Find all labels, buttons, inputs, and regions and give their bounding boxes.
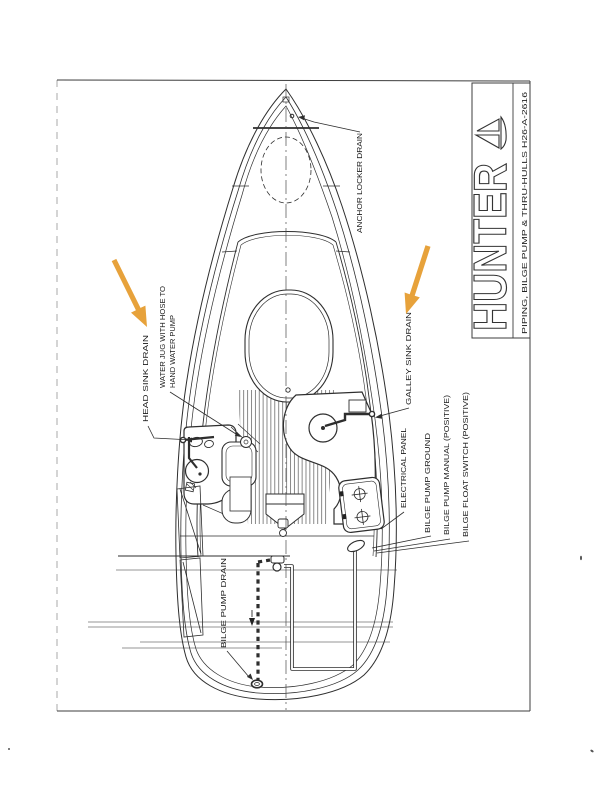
speck-bottom-right — [590, 749, 594, 753]
label-water-jug-line2: HAND WATER PUMP — [168, 315, 177, 388]
mast-post-mark — [286, 388, 290, 392]
pop-top-outer — [245, 290, 333, 402]
leader-arrowhead-bilge-drain — [247, 674, 253, 681]
label-galley-sink-drain: GALLEY SINK DRAIN — [404, 312, 413, 405]
leader-bilge-pump-ground — [372, 536, 431, 548]
label-electrical-panel: ELECTRICAL PANEL — [399, 428, 408, 508]
highlight-arrow-head-sink-drain — [112, 259, 147, 327]
electrical-panel — [338, 477, 385, 534]
galley-sink-drain-dot — [321, 426, 325, 430]
cockpit-fitting-box — [278, 519, 288, 528]
toilet — [186, 460, 209, 483]
leader-bilge-pump-drain — [227, 651, 249, 677]
leader-arrowhead-galley-sink — [375, 414, 382, 419]
speck-bottom-left — [8, 748, 10, 750]
bilge-system — [249, 538, 366, 688]
cabin-front — [238, 232, 336, 243]
deck-lines — [222, 251, 350, 252]
galley-sink-thru-hull — [369, 411, 374, 416]
panel-clip-bottom — [342, 514, 346, 519]
label-bilge-float-switch: BILGE FLOAT SWITCH (POSITIVE) — [461, 392, 470, 537]
water-jug — [241, 437, 252, 448]
label-water-jug-line1: WATER JUG WITH HOSE TO — [158, 286, 167, 388]
leader-galley-sink-drain — [380, 408, 409, 416]
leader-bilge-float-switch — [377, 541, 469, 553]
galley-stove — [349, 400, 366, 412]
bilge-pump-thru-hull — [252, 680, 263, 688]
highlight-arrow-galley-sink-drain — [405, 245, 431, 314]
pop-top-hatch — [245, 290, 333, 402]
cockpit-fitting-ball — [280, 530, 287, 537]
frame-top — [57, 80, 530, 81]
label-head-sink-drain: HEAD SINK DRAIN — [141, 335, 150, 422]
label-anchor-locker-drain: ANCHOR LOCKER DRAIN — [355, 133, 364, 233]
label-bilge-pump-manual: BILGE PUMP MANUAL (POSITIVE) — [442, 395, 451, 535]
label-bilge-pump-ground: BILGE PUMP GROUND — [423, 433, 432, 533]
speck-right-margin — [580, 556, 582, 560]
cabin-front-inner — [241, 235, 333, 245]
cockpit-line-4 — [122, 642, 390, 648]
toilet-drain-dot — [198, 472, 201, 475]
leader-anchor-locker-drain — [300, 118, 360, 133]
cockpit-line-3 — [88, 622, 393, 627]
port-locker-box — [230, 477, 251, 511]
bilge-pump-dome — [273, 563, 281, 571]
brand-name: HUNTER — [464, 163, 516, 331]
bilge-suction-hose-elbow — [258, 560, 270, 562]
title-block: HUNTER PIPING, BILGE PUMP & THRU-HULLS H… — [464, 83, 530, 338]
boat-piping-diagram: HUNTER PIPING, BILGE PUMP & THRU-HULLS H… — [0, 0, 612, 792]
electrical-panel-box — [338, 477, 385, 534]
label-bilge-pump-drain: BILGE PUMP DRAIN — [219, 558, 228, 648]
scanned-drawing-page: HUNTER PIPING, BILGE PUMP & THRU-HULLS H… — [0, 0, 612, 792]
bilge-discharge-hose-core — [284, 550, 355, 669]
scan-specks — [8, 556, 594, 753]
bilge-discharge-hose-outer — [284, 550, 355, 669]
panel-clip-top — [340, 491, 344, 496]
bilge-pump-body — [271, 556, 284, 563]
drawing-title: PIPING, BILGE PUMP & THRU-HULLS H26-A-26… — [520, 92, 529, 334]
